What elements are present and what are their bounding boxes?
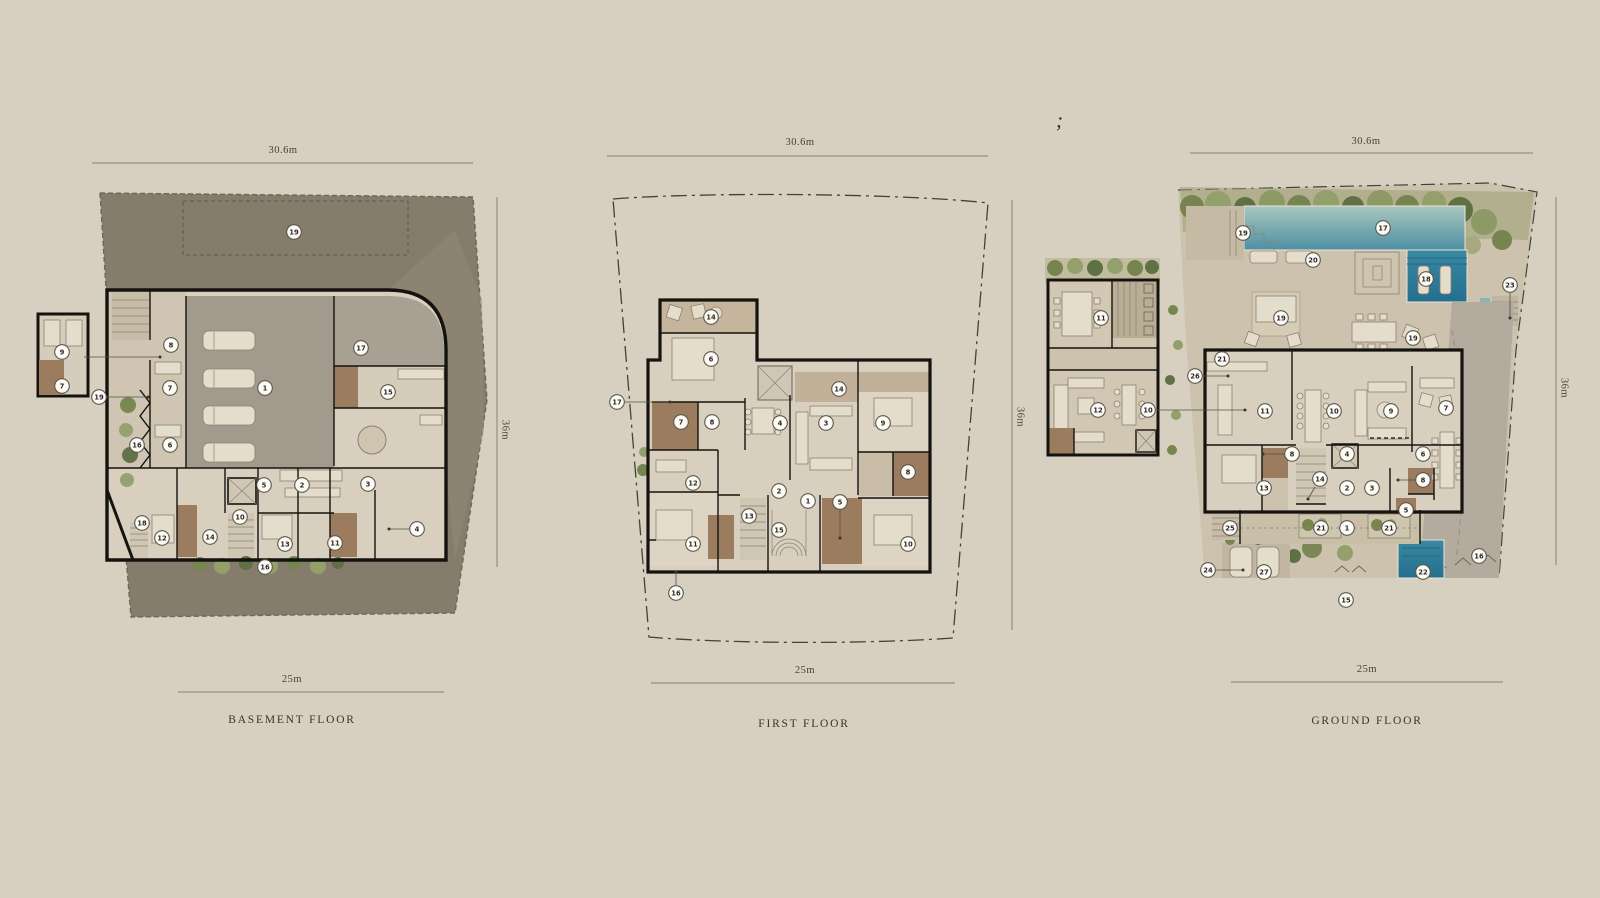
plan-marker-number: 16 [260, 563, 270, 571]
plan-marker-number: 11 [1260, 407, 1270, 415]
plan-marker-number: 1 [806, 497, 811, 505]
leader-dot [839, 537, 842, 540]
plan-marker-number: 16 [1474, 552, 1484, 560]
floor-plans-page: 1997198711715166523181214101311416 14617… [0, 0, 1600, 898]
plan-marker-number: 9 [60, 348, 65, 356]
plan-marker-number: 19 [1408, 334, 1418, 342]
plan-marker-number: 16 [671, 589, 681, 597]
bed [1222, 455, 1256, 483]
pool-platform [1355, 252, 1399, 294]
stairs [112, 292, 150, 340]
plan-marker-number: 9 [1389, 407, 1394, 415]
pergola [1112, 280, 1158, 338]
basement-dim-side: 36m [500, 420, 511, 440]
plan-marker-number: 18 [137, 519, 147, 527]
plan-marker-number: 2 [777, 487, 782, 495]
plan-marker-number: 15 [1341, 596, 1351, 604]
leader-dot [1307, 498, 1310, 501]
plan-marker-number: 11 [330, 539, 340, 547]
leader-dot [1397, 479, 1400, 482]
plan-marker-number: 18 [1421, 275, 1431, 283]
plan-marker-number: 14 [706, 313, 716, 321]
elevator [1136, 430, 1156, 452]
stray-mark: ; [1056, 108, 1063, 133]
plan-marker-number: 8 [710, 418, 715, 426]
elevator [228, 478, 256, 504]
first-floor-label: FIRST FLOOR [758, 718, 849, 730]
plan-marker-number: 8 [169, 341, 174, 349]
leader-dot [388, 528, 391, 531]
first-dim-side: 36m [1015, 407, 1026, 427]
plan-marker-number: 4 [1345, 450, 1350, 458]
bed [656, 510, 692, 540]
basement-dim-top: 30.6m [268, 145, 297, 156]
plan-marker-number: 13 [1259, 484, 1269, 492]
plan-marker-number: 4 [778, 419, 783, 427]
ground-dim-top: 30.6m [1351, 136, 1380, 147]
plan-marker-number: 22 [1418, 568, 1428, 576]
plan-marker-number: 14 [205, 533, 215, 541]
plan-marker-number: 21 [1217, 355, 1227, 363]
plan-marker-number: 7 [60, 382, 65, 390]
lounger [1250, 251, 1277, 263]
plan-marker-number: 5 [1404, 506, 1409, 514]
plan-marker-number: 15 [383, 388, 393, 396]
plan-marker-number: 15 [774, 526, 784, 534]
plan-marker-number: 10 [235, 513, 245, 521]
car-icon [1230, 547, 1252, 577]
ground-dim-side: 36m [1559, 378, 1570, 398]
ground-floor-label: GROUND FLOOR [1311, 715, 1422, 727]
plan-marker-number: 1 [263, 384, 268, 392]
plan-marker-number: 17 [612, 398, 622, 406]
plans-canvas: 1997198711715166523181214101311416 14617… [0, 0, 1600, 898]
plan-marker-number: 17 [1378, 224, 1388, 232]
swimming-pool [1244, 206, 1465, 250]
annex-building [1045, 258, 1160, 455]
plan-marker-number: 6 [168, 441, 173, 449]
plan-marker-number: 21 [1316, 524, 1326, 532]
plan-marker-number: 7 [168, 384, 173, 392]
plan-marker-number: 14 [834, 385, 844, 393]
plan-marker-number: 27 [1259, 568, 1269, 576]
leader-dot [1227, 375, 1230, 378]
round-lounge-sofa [358, 426, 386, 454]
plan-marker-number: 10 [903, 540, 913, 548]
plan-marker-number: 2 [1345, 484, 1350, 492]
first-floor-plan-drawing [613, 194, 988, 642]
basement-dim-bottom: 25m [282, 674, 302, 685]
first-dim-bottom: 25m [795, 665, 815, 676]
pool-lounger [1440, 266, 1451, 294]
plan-marker-number: 3 [1370, 484, 1375, 492]
plan-marker-number: 24 [1203, 566, 1213, 574]
dining-table [1305, 390, 1321, 442]
plan-marker-number: 19 [1276, 314, 1286, 322]
basement-plan-drawing [38, 193, 487, 617]
plan-marker-number: 5 [838, 498, 843, 506]
plan-marker-number: 8 [906, 468, 911, 476]
plan-marker-number: 12 [157, 534, 167, 542]
plan-marker-number: 6 [709, 355, 714, 363]
leader-dot [159, 356, 162, 359]
plan-marker-number: 12 [688, 479, 698, 487]
plan-marker-number: 23 [1505, 281, 1515, 289]
plan-marker-number: 3 [824, 419, 829, 427]
plan-marker-number: 6 [1421, 450, 1426, 458]
plan-marker-number: 13 [280, 540, 290, 548]
leader-dot [1262, 453, 1265, 456]
leader-dot [1244, 409, 1247, 412]
plan-marker-number: 11 [688, 540, 698, 548]
plan-marker-number: 4 [415, 525, 420, 533]
plan-marker-number: 13 [744, 512, 754, 520]
plan-marker-number: 8 [1290, 450, 1295, 458]
first-dim-top: 30.6m [785, 137, 814, 148]
leader-dot [675, 571, 678, 574]
leader-dot [147, 396, 150, 399]
plan-marker-number: 9 [881, 419, 886, 427]
plan-marker-number: 10 [1329, 407, 1339, 415]
bathroom [1262, 448, 1288, 478]
leader-dot [1242, 569, 1245, 572]
plan-marker-number: 19 [289, 228, 299, 236]
plan-marker-number: 7 [679, 418, 684, 426]
plan-marker-number: 20 [1308, 256, 1318, 264]
plan-marker-number: 8 [1421, 476, 1426, 484]
plan-marker-number: 14 [1315, 475, 1325, 483]
plan-marker-number: 2 [300, 481, 305, 489]
leader-dot [1509, 317, 1512, 320]
plan-marker-number: 10 [1143, 406, 1153, 414]
plan-marker-number: 1 [1345, 524, 1350, 532]
plan-marker-number: 26 [1190, 372, 1200, 380]
ground-floor-plan-drawing [1045, 183, 1537, 578]
plan-marker-number: 11 [1096, 314, 1106, 322]
plan-marker-number: 7 [1444, 404, 1449, 412]
plan-marker-number: 25 [1225, 524, 1235, 532]
bathroom [708, 515, 734, 559]
skylight [758, 366, 792, 400]
stairs [740, 498, 766, 560]
plan-marker-number: 16 [132, 441, 142, 449]
plan-marker-number: 3 [366, 480, 371, 488]
basement-bath [334, 366, 358, 408]
plan-marker-number: 19 [94, 393, 104, 401]
plan-marker-number: 12 [1093, 406, 1103, 414]
basement-floor-label: BASEMENT FLOOR [228, 714, 356, 726]
dining-table [1062, 292, 1092, 336]
dining-table [752, 408, 774, 434]
plan-marker-number: 5 [262, 481, 267, 489]
ground-dim-bottom: 25m [1357, 664, 1377, 675]
plan-marker-number: 17 [356, 344, 366, 352]
plan-marker-number: 19 [1238, 229, 1248, 237]
plan-marker-number: 21 [1384, 524, 1394, 532]
leader-dot [669, 401, 672, 404]
